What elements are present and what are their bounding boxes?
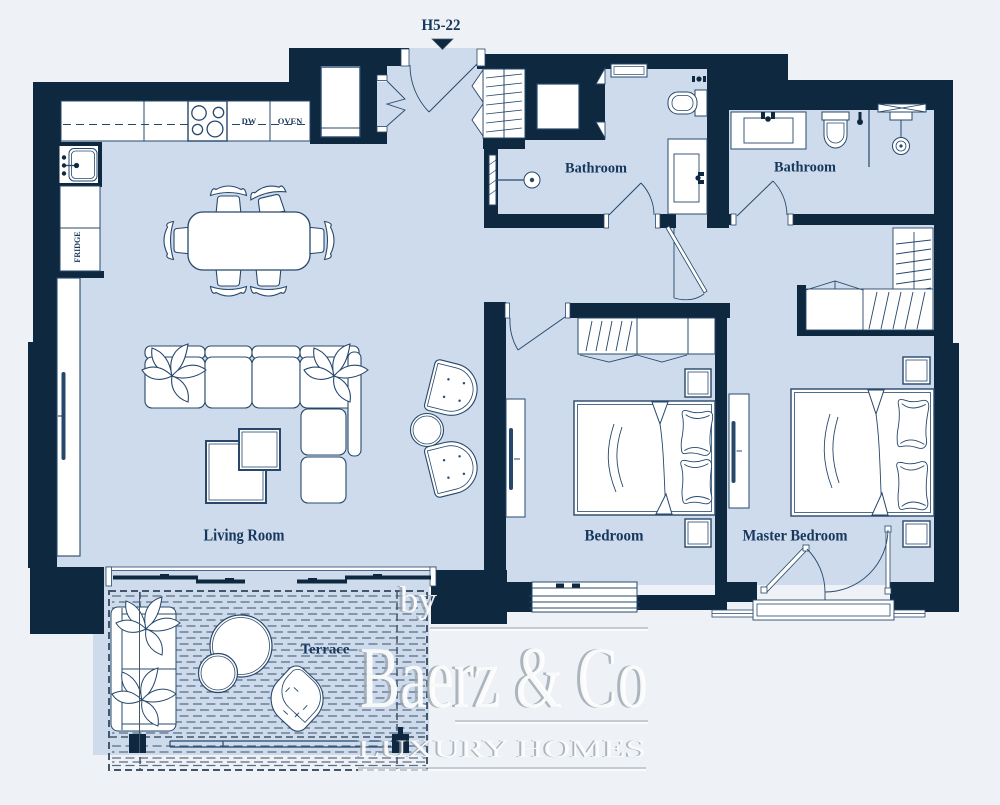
svg-text:LUXURY HOMES: LUXURY HOMES: [358, 736, 646, 763]
svg-text:Master Bedroom: Master Bedroom: [743, 528, 848, 545]
svg-text:OVEN: OVEN: [278, 116, 303, 126]
svg-text:Bathroom: Bathroom: [565, 161, 627, 177]
svg-text:Living Room: Living Room: [204, 526, 285, 545]
svg-text:Bathroom: Bathroom: [774, 160, 836, 176]
svg-text:H5-22: H5-22: [422, 17, 461, 34]
svg-text:DW: DW: [242, 116, 257, 126]
svg-text:by: by: [400, 580, 438, 621]
svg-text:FRIDGE: FRIDGE: [73, 231, 82, 262]
svg-text:Bedroom: Bedroom: [585, 528, 644, 545]
svg-text:Terrace: Terrace: [301, 642, 350, 657]
svg-text:Baerz & Co: Baerz & Co: [360, 630, 648, 727]
